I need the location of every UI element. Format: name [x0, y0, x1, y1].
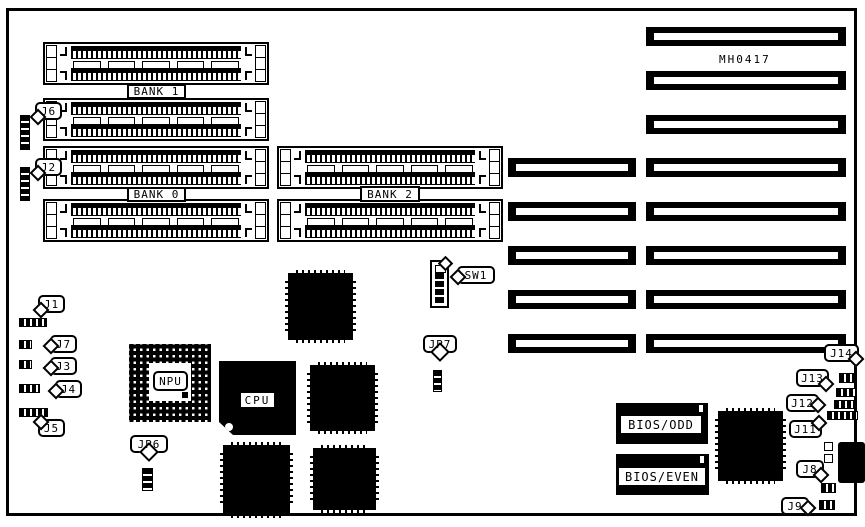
expansion-slot-7-short [508, 290, 636, 309]
j5-callout: J5 [38, 419, 65, 437]
board-id-label: MH0417 [719, 53, 771, 66]
j4-callout: J4 [55, 380, 82, 398]
j9-callout: J9 [781, 497, 809, 515]
expansion-slot-7-long [646, 290, 846, 309]
j2-callout: J2 [35, 158, 62, 176]
motherboard-diagram-page: { "board": { "id_label": "MH0417" }, "me… [0, 0, 865, 527]
j1-jumper [19, 318, 47, 327]
j14-jumper [839, 373, 855, 383]
bios-even-label: BIOS/EVEN [619, 468, 705, 485]
expansion-slot-6-short [508, 246, 636, 265]
expansion-slot-1 [646, 27, 846, 46]
bank0-label: BANK 0 [127, 187, 186, 202]
qfp-chip-3 [313, 448, 376, 510]
expansion-slot-5-short [508, 202, 636, 221]
simm-socket-bank0-a [43, 146, 269, 189]
keyboard-connector [838, 442, 865, 483]
bios-even-chip: BIOS/EVEN [616, 454, 709, 495]
npu-label: NPU [153, 371, 188, 391]
j8-jumper [821, 483, 836, 493]
j7-callout: J7 [50, 335, 77, 353]
j7-jumper [19, 340, 32, 349]
j3-callout: J3 [50, 357, 77, 375]
expansion-slot-4-long [646, 158, 846, 177]
npu-pin1-marker [182, 392, 188, 398]
j12-jumper [834, 400, 856, 409]
simm-socket-bank1-b [43, 98, 269, 141]
j6-jumper [20, 115, 30, 150]
qfp-chip-4 [223, 445, 290, 515]
simm-socket-bank2-a [277, 146, 503, 189]
j4-jumper [19, 384, 40, 393]
sw1-dip-switch [430, 260, 449, 308]
expansion-slot-5-long [646, 202, 846, 221]
bios-even-notch [700, 456, 704, 463]
sw1-callout: SW1 [457, 266, 495, 284]
j13-callout: J13 [796, 369, 829, 387]
qfp-chip-1 [288, 273, 353, 340]
jp7-jumper [433, 370, 442, 392]
npu-socket: NPU [129, 344, 211, 422]
expansion-slot-6-long [646, 246, 846, 265]
j11-jumper [827, 411, 858, 420]
simm-socket-bank1-a [43, 42, 269, 85]
cpu-label: CPU [241, 393, 274, 407]
expansion-slot-4-short [508, 158, 636, 177]
j1-callout: J1 [38, 295, 65, 313]
bios-odd-notch [699, 405, 703, 412]
j9-jumper [819, 500, 835, 510]
bios-odd-label: BIOS/ODD [621, 416, 701, 433]
j3-jumper [19, 360, 32, 369]
keyboard-connector-pin-2 [824, 454, 833, 463]
expansion-slot-8-long [646, 334, 846, 353]
j11-callout: J11 [789, 420, 822, 438]
qfp-chip-2 [310, 365, 375, 431]
j14-callout: J14 [824, 344, 859, 362]
cpu-chip: CPU [219, 361, 296, 435]
expansion-slot-3 [646, 115, 846, 134]
cpu-pin1-dot [225, 423, 233, 431]
j13-jumper [836, 388, 856, 397]
j12-callout: J12 [786, 394, 819, 412]
bank2-label: BANK 2 [360, 186, 420, 202]
jp6-jumper [142, 468, 153, 491]
jp7-callout: JP7 [423, 335, 457, 353]
bank1-label: BANK 1 [127, 84, 186, 99]
simm-socket-bank2-b [277, 199, 503, 242]
j6-callout: J6 [35, 102, 62, 120]
keyboard-connector-pin-1 [824, 442, 833, 451]
bios-odd-chip: BIOS/ODD [616, 403, 708, 444]
qfp-chip-5 [718, 411, 783, 481]
j8-callout: J8 [796, 460, 824, 478]
expansion-slot-8-short [508, 334, 636, 353]
simm-socket-bank0-b [43, 199, 269, 242]
jp6-callout: JP6 [130, 435, 168, 453]
expansion-slot-2 [646, 71, 846, 90]
board-outline: BANK 1 BANK 0 BANK 2 MH0417 NPU CPU BIOS… [6, 8, 857, 516]
